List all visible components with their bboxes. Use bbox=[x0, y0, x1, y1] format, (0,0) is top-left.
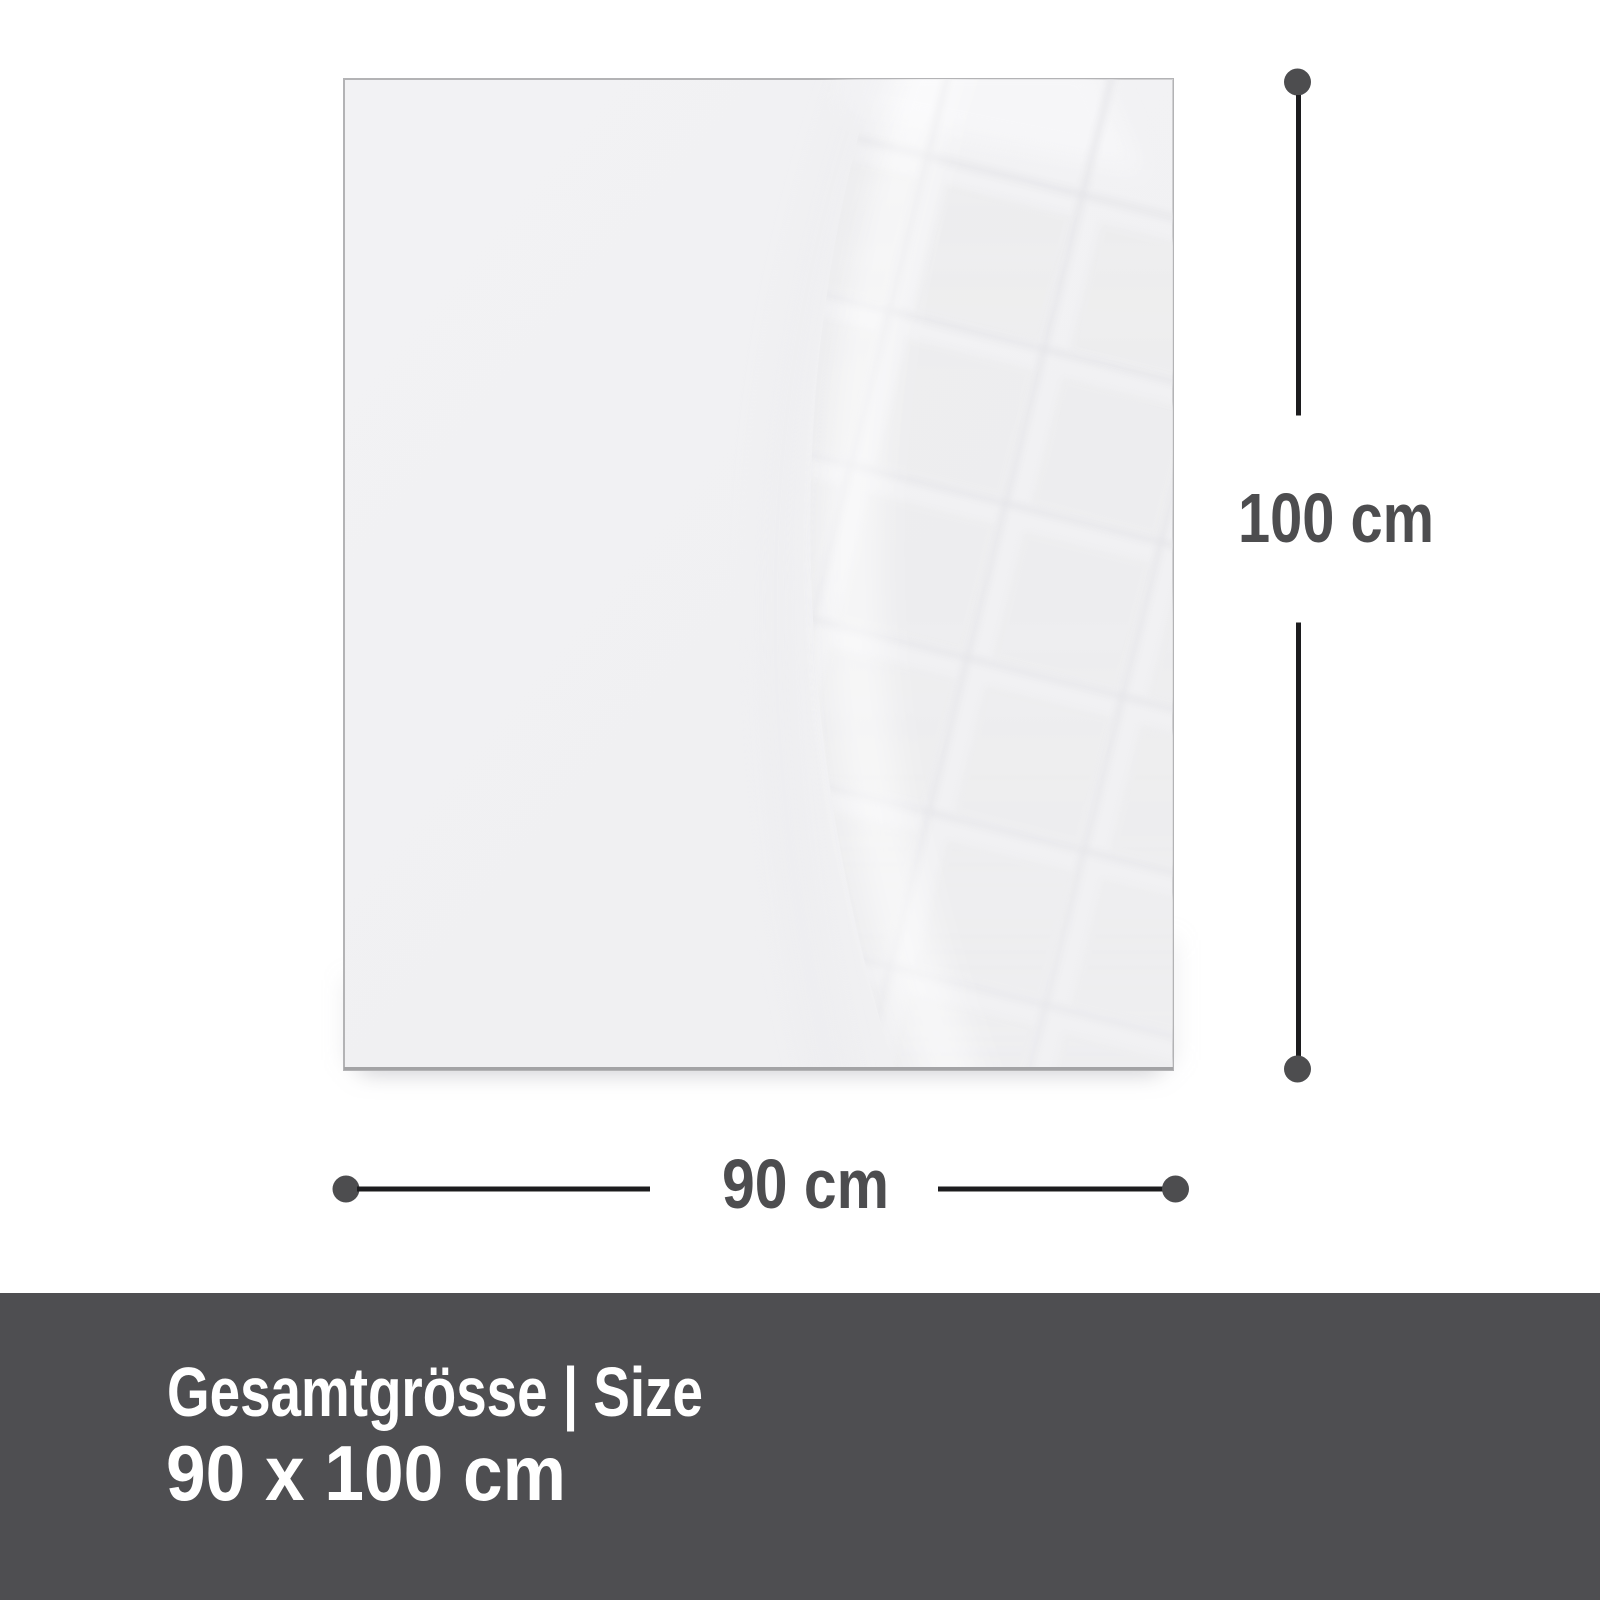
svg-text:90 x 100 cm: 90 x 100 cm bbox=[166, 1429, 566, 1517]
svg-text:90 cm: 90 cm bbox=[722, 1145, 889, 1223]
svg-text:100 cm: 100 cm bbox=[1238, 479, 1434, 557]
svg-text:Gesamtgrösse | Size: Gesamtgrösse | Size bbox=[167, 1353, 703, 1432]
